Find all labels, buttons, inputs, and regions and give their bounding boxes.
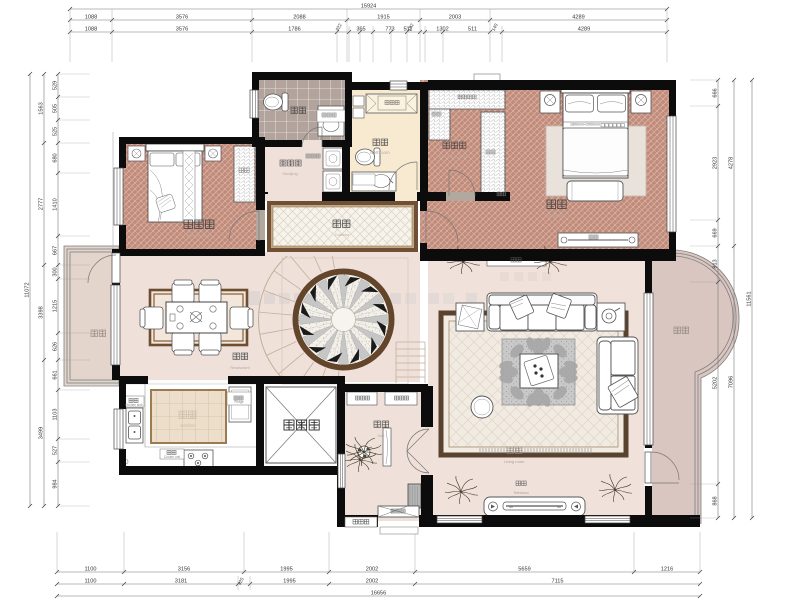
svg-text:680: 680 bbox=[53, 153, 59, 162]
svg-text:1915: 1915 bbox=[377, 15, 389, 21]
svg-text:Kitchen: Kitchen bbox=[180, 423, 196, 428]
svg-text:3576: 3576 bbox=[176, 27, 188, 33]
svg-text:40: 40 bbox=[557, 505, 561, 509]
svg-text:4289: 4289 bbox=[572, 15, 584, 21]
svg-text:1088: 1088 bbox=[85, 15, 97, 21]
svg-text:525: 525 bbox=[53, 127, 59, 136]
svg-text:2003: 2003 bbox=[449, 15, 461, 21]
svg-text:11561: 11561 bbox=[747, 291, 753, 306]
svg-text:5659: 5659 bbox=[518, 567, 530, 573]
svg-text:365: 365 bbox=[356, 27, 365, 33]
svg-text:7096: 7096 bbox=[729, 376, 735, 388]
svg-text:Cooker unit: Cooker unit bbox=[164, 455, 180, 459]
svg-text:1302: 1302 bbox=[436, 27, 448, 33]
svg-text:1216: 1216 bbox=[661, 567, 673, 573]
svg-text:529: 529 bbox=[53, 81, 59, 90]
svg-text:Nanny room: Nanny room bbox=[187, 233, 212, 238]
svg-text:666: 666 bbox=[713, 88, 719, 97]
svg-text:4278: 4278 bbox=[729, 157, 735, 169]
svg-text:3156: 3156 bbox=[178, 567, 190, 573]
svg-text:Living room: Living room bbox=[504, 459, 525, 464]
svg-text:Bathroom: Bathroom bbox=[288, 118, 308, 123]
svg-text:Bathroom: Bathroom bbox=[370, 150, 390, 155]
svg-text:7115: 7115 bbox=[551, 579, 563, 585]
svg-text:3181: 3181 bbox=[175, 579, 187, 585]
svg-text:1563: 1563 bbox=[39, 102, 45, 114]
svg-text:661: 661 bbox=[53, 370, 59, 379]
svg-text:3576: 3576 bbox=[176, 15, 188, 21]
svg-text:984: 984 bbox=[53, 479, 59, 488]
svg-text:4289: 4289 bbox=[578, 27, 590, 33]
svg-text:40: 40 bbox=[509, 505, 513, 509]
svg-text:15924: 15924 bbox=[361, 4, 377, 10]
svg-text:773: 773 bbox=[385, 27, 394, 33]
svg-text:300: 300 bbox=[53, 267, 59, 276]
svg-text:16656: 16656 bbox=[371, 591, 387, 597]
svg-text:2002: 2002 bbox=[366, 579, 378, 585]
svg-text:2777: 2777 bbox=[39, 198, 45, 210]
svg-text:913: 913 bbox=[713, 259, 719, 268]
svg-text:3398: 3398 bbox=[39, 306, 45, 318]
svg-text:1100: 1100 bbox=[84, 579, 96, 585]
svg-text:868: 868 bbox=[713, 496, 719, 505]
svg-text:1786: 1786 bbox=[288, 27, 300, 33]
svg-text:1410: 1410 bbox=[53, 198, 59, 210]
svg-text:1100: 1100 bbox=[84, 567, 96, 573]
svg-text:1215: 1215 bbox=[53, 300, 59, 312]
svg-text:1800mm×2000mm: 1800mm×2000mm bbox=[570, 123, 600, 127]
svg-text:1995: 1995 bbox=[280, 567, 292, 573]
svg-text:2923: 2923 bbox=[713, 157, 719, 169]
svg-text:626: 626 bbox=[53, 342, 59, 351]
svg-text:11072: 11072 bbox=[25, 282, 31, 297]
svg-text:2002: 2002 bbox=[366, 567, 378, 573]
svg-text:Kitchen sink: Kitchen sink bbox=[125, 403, 143, 407]
svg-text:669: 669 bbox=[713, 228, 719, 237]
svg-text:Dressing room: Dressing room bbox=[439, 154, 469, 159]
svg-text:2088: 2088 bbox=[293, 15, 305, 21]
svg-text:1088: 1088 bbox=[85, 27, 97, 33]
svg-text:527: 527 bbox=[53, 446, 59, 455]
svg-text:1995: 1995 bbox=[283, 579, 295, 585]
svg-text:Bedroom: Bedroom bbox=[548, 213, 567, 218]
svg-text:1103: 1103 bbox=[53, 408, 59, 420]
svg-text:505: 505 bbox=[53, 104, 59, 113]
svg-text:511: 511 bbox=[468, 27, 477, 33]
svg-text:Studying: Studying bbox=[282, 171, 298, 176]
svg-text:3499: 3499 bbox=[39, 427, 45, 439]
svg-text:667: 667 bbox=[53, 246, 59, 255]
svg-text:Television: Television bbox=[513, 491, 528, 495]
svg-text:Hall: Hall bbox=[378, 433, 385, 438]
svg-text:Corridor: Corridor bbox=[335, 232, 350, 237]
svg-text:Fridge: Fridge bbox=[234, 400, 243, 404]
svg-text:Restaurant: Restaurant bbox=[230, 365, 250, 370]
svg-text:5202: 5202 bbox=[713, 377, 719, 389]
